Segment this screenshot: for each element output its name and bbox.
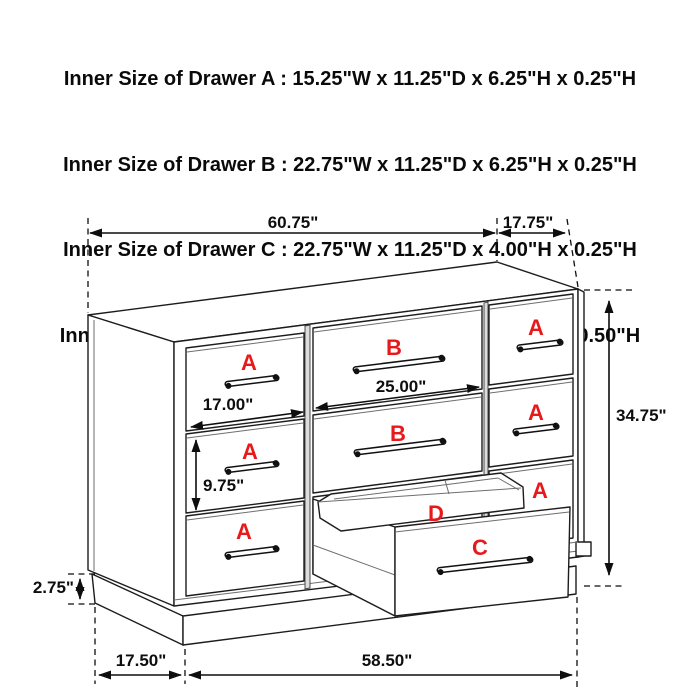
- dim-drawer-a-height-label: 9.75": [203, 476, 244, 495]
- drawer-a3-left: [186, 501, 304, 596]
- drawer-c-front: [395, 507, 570, 616]
- wall-bracket: [576, 542, 591, 556]
- dim-base-depth-label: 17.50": [116, 651, 167, 670]
- cabinet-right-edge: [578, 289, 584, 557]
- dim-base-height: 2.75": [33, 574, 98, 604]
- column-divider-left: [305, 325, 310, 589]
- drawer-d-label: D: [428, 501, 444, 526]
- extension-line: [567, 219, 578, 287]
- drawer-a1-left-label: A: [241, 350, 257, 375]
- dresser-dimension-diagram: Inner Size of Drawer A : 15.25"W x 11.25…: [0, 0, 700, 700]
- dim-drawer-a-width-label: 17.00": [203, 395, 254, 414]
- drawer-b1-label: B: [386, 335, 402, 360]
- drawer-a2-left-label: A: [242, 439, 258, 464]
- dim-overall-height: 34.75": [584, 290, 667, 586]
- dim-top-width-label: 60.75": [268, 213, 319, 232]
- drawer-a1-right-label: A: [528, 315, 544, 340]
- cabinet-left-panel: [88, 315, 174, 606]
- drawer-b2-label: B: [390, 421, 406, 446]
- drawer-a3-right-label: A: [532, 478, 548, 503]
- dim-overall-height-label: 34.75": [616, 406, 667, 425]
- dim-base-height-label: 2.75": [33, 578, 74, 597]
- drawer-a2-right-label: A: [528, 400, 544, 425]
- dim-drawer-b-width-label: 25.00": [376, 377, 427, 396]
- drawer-c-label: C: [472, 535, 488, 560]
- dim-base-width-label: 58.50": [362, 651, 413, 670]
- drawer-c-face: [395, 507, 570, 616]
- dresser-line-drawing: A A A B B A A A D C 60.75" 17.75": [0, 0, 700, 700]
- drawer-a3-left-label: A: [236, 519, 252, 544]
- dim-top-depth-label: 17.75": [503, 213, 554, 232]
